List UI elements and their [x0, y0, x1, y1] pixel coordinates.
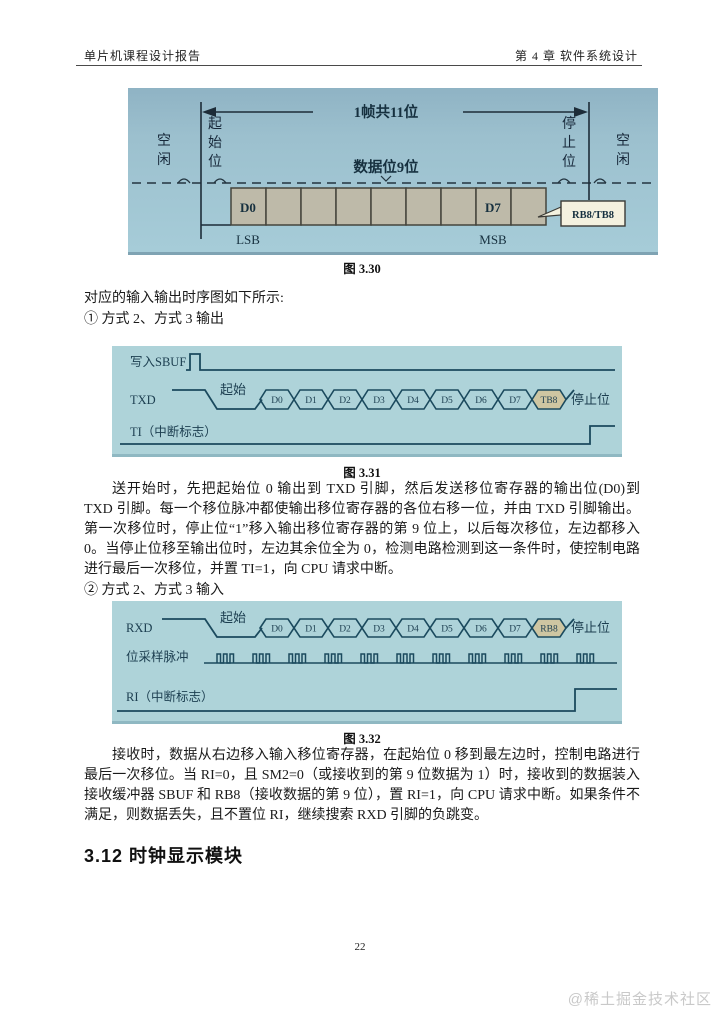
rxd-start-label: 起始: [220, 610, 246, 625]
data-bits-label: 数据位9位: [353, 158, 419, 176]
rxd-stop-label: 停止位: [571, 620, 610, 635]
bit-d7-label: D7: [485, 200, 501, 215]
svg-text:D4: D4: [407, 396, 419, 406]
document-page: 单片机课程设计报告 第 4 章 软件系统设计 1帧共11位: [0, 0, 720, 1019]
txd-label: TXD: [130, 393, 156, 407]
header-rule: [76, 65, 642, 66]
svg-text:D2: D2: [339, 625, 351, 635]
svg-text:D4: D4: [407, 625, 419, 635]
svg-text:D0: D0: [271, 625, 283, 635]
svg-text:RB8: RB8: [540, 625, 558, 635]
page-number: 22: [0, 941, 720, 953]
svg-text:D7: D7: [509, 396, 521, 406]
watermark-text: @稀土掘金技术社区: [568, 988, 712, 1009]
intro-line: 对应的输入输出时序图如下所示:: [84, 289, 640, 309]
svg-text:D2: D2: [339, 396, 351, 406]
txd-start-label: 起始: [220, 382, 246, 397]
output-timing-drawing: 写入SBUF TXD 起始 D0 D1 D2 D3: [112, 346, 622, 454]
sampling-label: 位采样脉冲: [126, 649, 189, 664]
start-bit-label: 起始位: [207, 115, 223, 172]
input-timing-drawing: RXD 起始 D0 D1 D2 D3 D4 D5 D6: [112, 601, 622, 721]
svg-text:D0: D0: [271, 396, 283, 406]
stop-bit-label: 停止位: [561, 115, 577, 172]
idle-left-label: 空闲: [156, 132, 172, 170]
figure-3-31-caption: 图 3.31: [84, 462, 640, 481]
svg-text:D5: D5: [441, 625, 453, 635]
svg-text:TB8: TB8: [541, 396, 558, 406]
figure-3-32-caption: 图 3.32: [84, 728, 640, 747]
svg-text:D3: D3: [373, 625, 385, 635]
list-item-mode-output: ① 方式 2、方式 3 输出: [84, 310, 640, 330]
figure-3-31-output-timing: 写入SBUF TXD 起始 D0 D1 D2 D3: [112, 346, 622, 457]
data-label-tick: [381, 176, 391, 181]
paragraph-output-mode: 送开始时，先把起始位 0 输出到 TXD 引脚，然后发送移位寄存器的输出位(D0…: [84, 480, 640, 580]
sampling-pulse-groups: [217, 654, 594, 663]
figure-3-32-input-timing: RXD 起始 D0 D1 D2 D3 D4 D5 D6: [112, 601, 622, 724]
frame-length-label: 1帧共11位: [354, 103, 419, 121]
rxd-start-bit-line: [162, 619, 262, 637]
svg-text:D1: D1: [305, 625, 317, 635]
callout-label: RB8/TB8: [572, 210, 614, 221]
svg-text:D3: D3: [373, 396, 385, 406]
bit-d0-label: D0: [240, 200, 256, 215]
paragraph-input-mode: 接收时，数据从右边移入输入移位寄存器，在起始位 0 移到最左边时，控制电路进行最…: [84, 746, 640, 826]
svg-text:D6: D6: [475, 625, 487, 635]
section-heading-3-12: 3.12 时钟显示模块: [84, 842, 243, 868]
write-sbuf-pulse-line: [186, 354, 615, 370]
rxd-label: RXD: [126, 621, 152, 635]
header-right-chapter: 第 4 章 软件系统设计: [515, 47, 638, 64]
figure-3-30-frame-format: 1帧共11位 数据位9位 D0 D7 LSB MSB: [128, 88, 658, 255]
header-left-title: 单片机课程设计报告: [84, 47, 201, 64]
figure-3-30-caption: 图 3.30: [84, 258, 640, 277]
svg-text:D1: D1: [305, 396, 317, 406]
ri-label: RI（中断标志）: [126, 689, 214, 704]
lsb-label: LSB: [236, 232, 260, 247]
svg-text:D6: D6: [475, 396, 487, 406]
txd-start-bit-line: [172, 390, 262, 409]
write-sbuf-label: 写入SBUF: [130, 355, 186, 369]
txd-stop-label: 停止位: [571, 392, 610, 407]
list-item-mode-input: ② 方式 2、方式 3 输入: [84, 581, 640, 601]
ti-label: TI（中断标志）: [130, 424, 217, 439]
rxd-bit-labels: D0 D1 D2 D3 D4 D5 D6 D7 RB8: [271, 625, 558, 635]
msb-label: MSB: [479, 232, 507, 247]
idle-right-label: 空闲: [615, 132, 631, 170]
txd-bit-labels: D0 D1 D2 D3 D4 D5 D6 D7 TB8: [271, 396, 558, 406]
svg-text:D7: D7: [509, 625, 521, 635]
svg-text:D5: D5: [441, 396, 453, 406]
